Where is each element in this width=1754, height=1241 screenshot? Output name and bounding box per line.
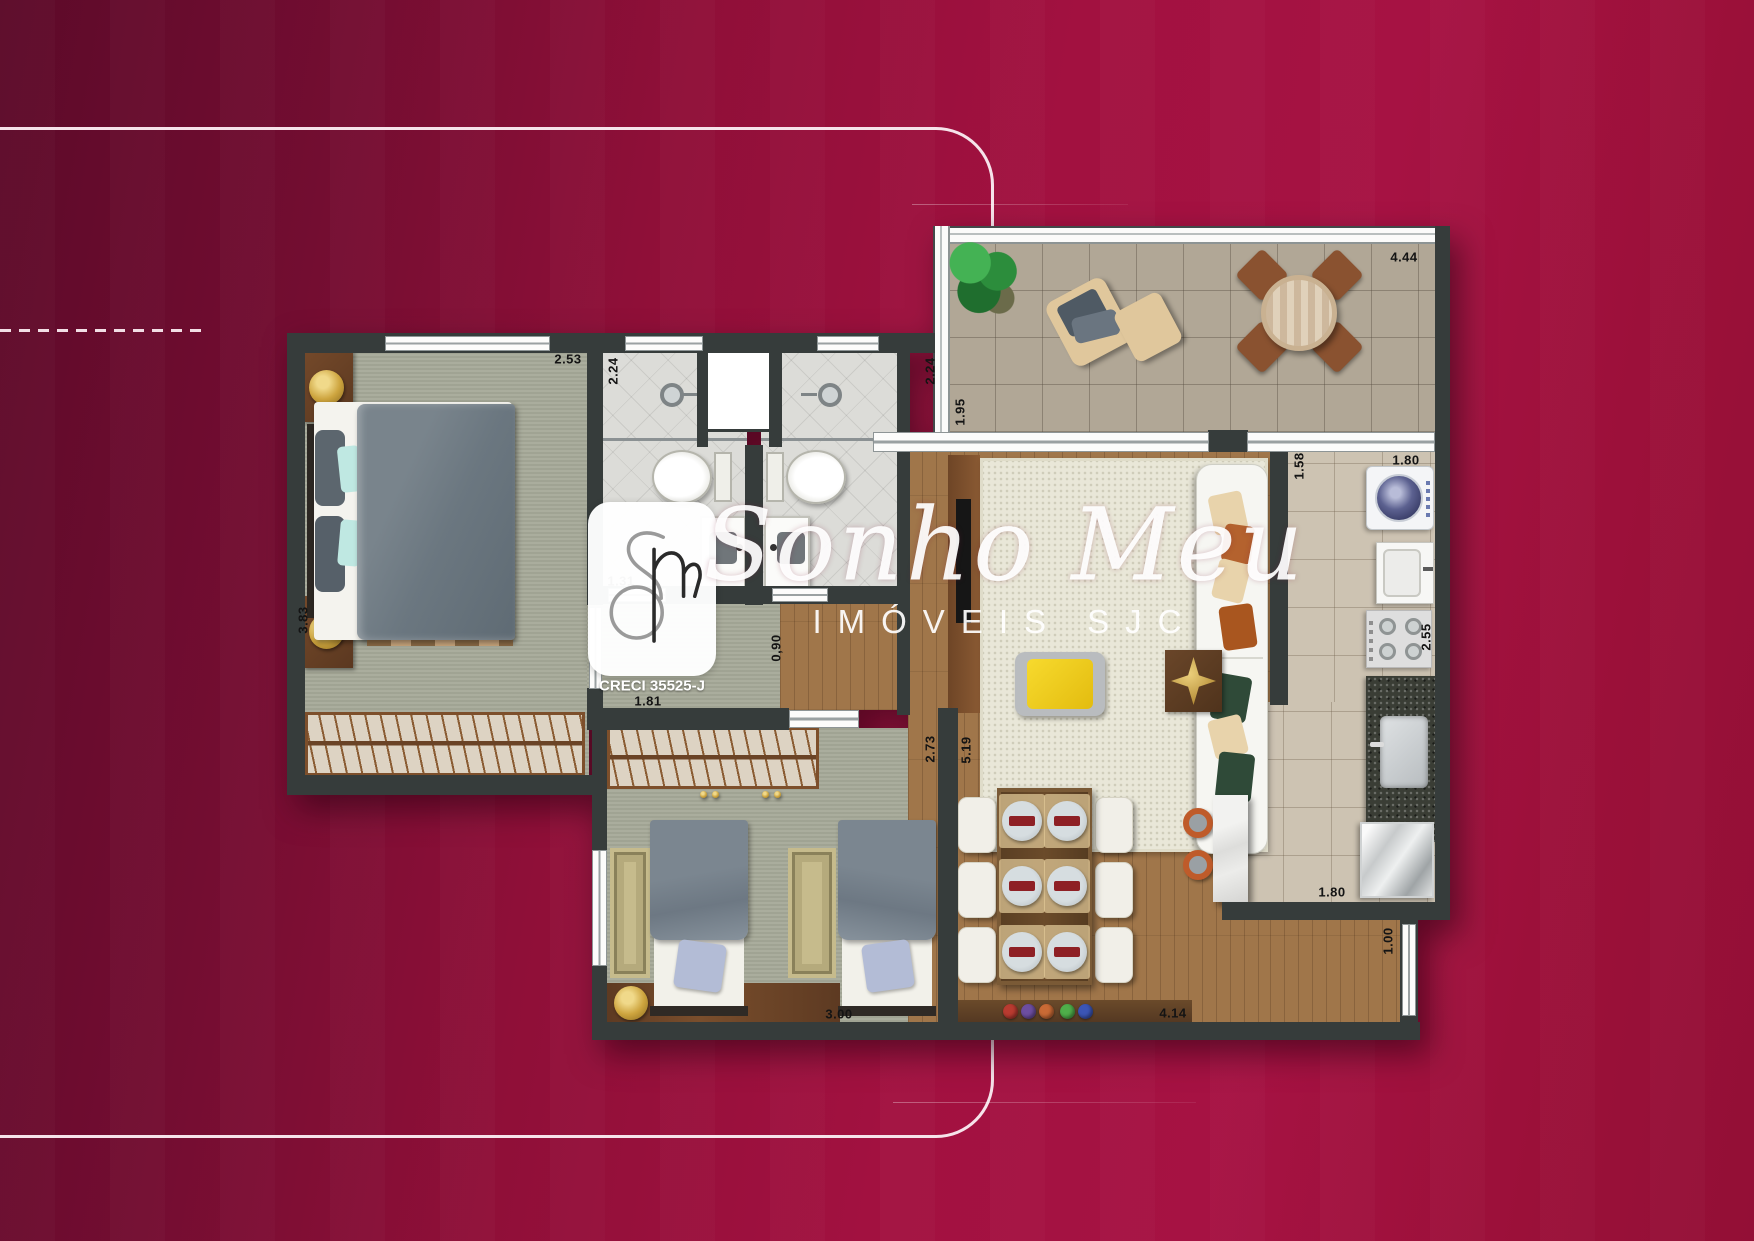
- ventilation-shaft: [705, 347, 772, 432]
- dim-label: 2.24: [923, 357, 938, 384]
- dining-chair: [1095, 797, 1133, 853]
- dim-label: 3.00: [825, 1007, 852, 1022]
- service-door: [1402, 924, 1416, 1016]
- dining-chair: [958, 862, 996, 918]
- dim-label: 0,90: [769, 634, 784, 661]
- washer-drum: [1375, 474, 1423, 522]
- master-closet: [305, 712, 585, 776]
- side-table: [1165, 650, 1222, 712]
- gold-star-decor: [1171, 657, 1216, 705]
- place-setting: [1002, 866, 1042, 906]
- kitchen-window: [1247, 432, 1435, 452]
- bed-duvet: [838, 820, 936, 940]
- dining-table: [997, 788, 1092, 985]
- dim-label: 1.80: [1318, 885, 1345, 900]
- washing-machine: [1366, 466, 1434, 530]
- burner: [1379, 643, 1396, 660]
- sm-monogram-icon: [596, 508, 708, 658]
- dim-label: 3.83: [296, 606, 311, 633]
- dining-chair: [958, 927, 996, 983]
- window: [817, 336, 879, 351]
- sofa-cushion: [1218, 603, 1258, 651]
- window: [385, 336, 550, 351]
- bed-duvet: [357, 404, 515, 640]
- bed-duvet: [650, 820, 748, 940]
- granite-counter: [1366, 676, 1435, 842]
- wall: [287, 775, 605, 795]
- place-setting: [1047, 866, 1087, 906]
- console-sideboard: [955, 1000, 1192, 1023]
- closet-knob: [712, 791, 719, 798]
- dining-chair: [1095, 862, 1133, 918]
- page-background: 2.53 2.24 2.24 4.44 1.95 1.58 1.80 2.55 …: [0, 0, 1754, 1241]
- place-setting: [1002, 932, 1042, 972]
- brand-subtitle: IMÓVEIS SJC: [812, 603, 1197, 641]
- window: [625, 336, 703, 351]
- brand-watermark: Sonho Meu: [704, 487, 1307, 604]
- dim-label: 2.24: [606, 357, 621, 384]
- dim-label: 4.44: [1390, 250, 1417, 265]
- breakfast-bar: [1213, 795, 1248, 902]
- window: [592, 850, 607, 966]
- single-bed: [838, 820, 936, 1016]
- shower-arm: [801, 393, 817, 396]
- yellow-cushion: [1027, 659, 1093, 709]
- place-setting: [1047, 932, 1087, 972]
- creci-number: CRECI 35525-J: [599, 678, 705, 695]
- wall: [587, 708, 789, 730]
- terrace-round-table: [1261, 275, 1337, 351]
- refrigerator: [1360, 822, 1434, 898]
- napkin: [1054, 947, 1080, 957]
- closet-knob: [700, 791, 707, 798]
- wall: [1435, 226, 1450, 920]
- napkin: [1009, 881, 1035, 891]
- dim-label: 5.19: [959, 736, 974, 763]
- closet-knob: [774, 791, 781, 798]
- bedroom-rug: [788, 848, 836, 978]
- laundry-basin: [1383, 549, 1421, 597]
- burner: [1379, 618, 1396, 635]
- bed-pillow: [673, 939, 727, 993]
- napkin: [1054, 881, 1080, 891]
- kitchen-sink: [1380, 716, 1428, 788]
- place-setting: [1047, 801, 1087, 841]
- vase-purple: [1021, 1004, 1036, 1019]
- faucet-icon: [1423, 567, 1433, 571]
- double-bed: [307, 396, 519, 646]
- door: [789, 710, 859, 728]
- vase-orange: [1039, 1004, 1054, 1019]
- dim-label: 1.58: [1292, 452, 1307, 479]
- shower-head-icon: [818, 383, 842, 407]
- agency-logo: [588, 502, 716, 676]
- bar-stool: [1183, 808, 1213, 838]
- wall: [592, 1022, 1420, 1040]
- dining-chair: [1095, 927, 1133, 983]
- bedroom2-closet: [607, 727, 819, 789]
- shower-partition: [601, 438, 747, 441]
- bed-footboard: [650, 1006, 748, 1016]
- bedroom-rug: [610, 848, 650, 978]
- washer-controls: [1426, 479, 1430, 517]
- vase-green: [1060, 1004, 1075, 1019]
- closet-knob: [762, 791, 769, 798]
- dim-label: 2.73: [923, 735, 938, 762]
- dim-label: 4.14: [1159, 1006, 1186, 1021]
- napkin: [1054, 816, 1080, 826]
- dim-label: 2.55: [1419, 623, 1434, 650]
- round-lamp-icon: [614, 986, 648, 1020]
- shower-head-icon: [660, 383, 684, 407]
- place-setting: [1002, 801, 1042, 841]
- single-bed: [650, 820, 748, 1016]
- wall: [287, 333, 305, 795]
- wall: [938, 708, 958, 1024]
- bed-footboard: [838, 1006, 936, 1016]
- bar-stool: [1183, 850, 1213, 880]
- dim-label: 1.81: [634, 694, 661, 709]
- dim-label: 1.00: [1381, 927, 1396, 954]
- coffee-bench: [1015, 652, 1105, 716]
- vase-red: [1003, 1004, 1018, 1019]
- faucet-icon: [1370, 742, 1384, 747]
- napkin: [1009, 947, 1035, 957]
- dim-label: 1.80: [1392, 453, 1419, 468]
- dim-label: 1.95: [953, 398, 968, 425]
- bed-pillow: [861, 939, 915, 993]
- vase-blue: [1078, 1004, 1093, 1019]
- stove-knobs: [1369, 619, 1373, 661]
- plant-icon: [943, 236, 1023, 320]
- wall: [769, 333, 782, 447]
- laundry-sink: [1376, 542, 1434, 604]
- dim-label: 2.53: [554, 352, 581, 367]
- sliding-door: [873, 432, 1209, 452]
- wall: [1208, 430, 1248, 452]
- napkin: [1009, 816, 1035, 826]
- dining-chair: [958, 797, 996, 853]
